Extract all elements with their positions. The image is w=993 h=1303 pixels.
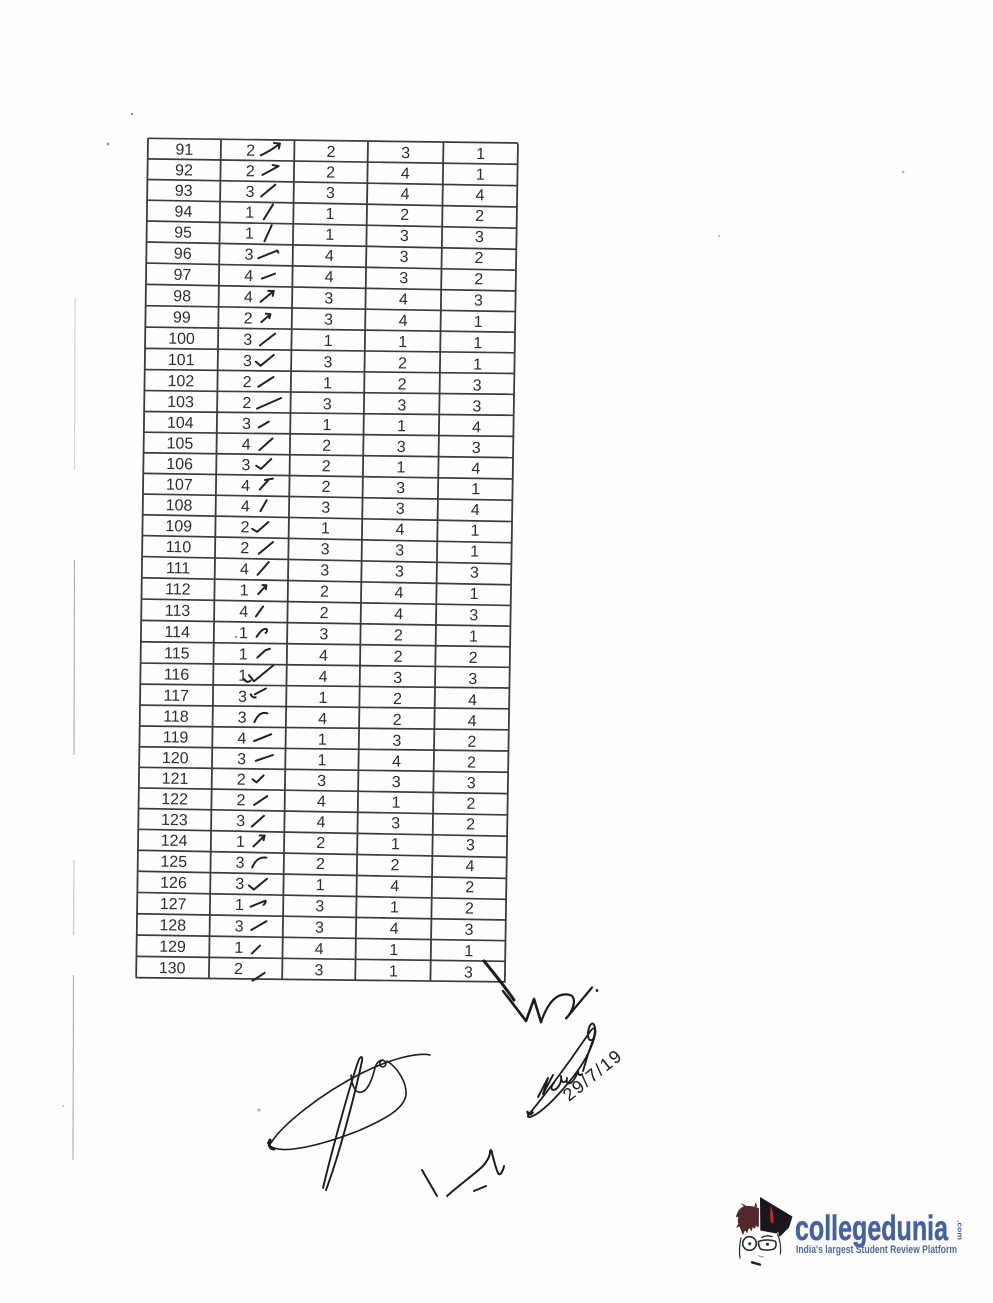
- svg-text:3: 3: [315, 898, 324, 915]
- svg-text:4: 4: [316, 814, 325, 831]
- svg-text:1: 1: [236, 834, 245, 851]
- svg-text:4: 4: [240, 561, 249, 578]
- svg-text:120: 120: [162, 750, 189, 767]
- svg-text:3: 3: [400, 228, 409, 245]
- svg-text:1: 1: [317, 752, 326, 769]
- svg-text:4: 4: [465, 858, 474, 875]
- svg-text:3: 3: [326, 185, 335, 202]
- svg-text:1: 1: [323, 375, 332, 392]
- svg-text:3: 3: [324, 290, 333, 307]
- svg-text:3: 3: [242, 416, 251, 433]
- svg-text:2: 2: [465, 879, 474, 896]
- svg-text:2: 2: [398, 376, 407, 393]
- svg-text:119: 119: [163, 729, 189, 746]
- svg-text:3: 3: [243, 353, 252, 370]
- svg-text:1: 1: [391, 836, 400, 853]
- svg-text:3: 3: [397, 397, 406, 414]
- svg-text:4: 4: [394, 585, 403, 602]
- svg-text:105: 105: [166, 435, 193, 452]
- svg-text:4: 4: [399, 291, 408, 308]
- svg-text:1: 1: [318, 690, 327, 707]
- svg-text:124: 124: [161, 833, 188, 850]
- svg-text:4: 4: [399, 313, 408, 330]
- svg-text:2: 2: [316, 835, 325, 852]
- svg-text:3: 3: [319, 626, 328, 643]
- svg-text:1: 1: [474, 314, 483, 331]
- svg-text:2: 2: [394, 649, 403, 666]
- svg-text:2: 2: [320, 584, 329, 601]
- svg-text:2: 2: [321, 479, 330, 496]
- svg-text:2: 2: [393, 691, 402, 708]
- svg-text:94: 94: [174, 204, 192, 221]
- svg-text:2: 2: [322, 458, 331, 475]
- svg-text:103: 103: [167, 394, 194, 411]
- svg-text:122: 122: [161, 791, 188, 808]
- svg-text:2: 2: [394, 627, 403, 644]
- svg-text:1: 1: [326, 206, 335, 223]
- svg-text:2: 2: [390, 857, 399, 874]
- svg-text:2: 2: [240, 519, 249, 536]
- svg-text:113: 113: [165, 603, 191, 620]
- svg-text:3: 3: [320, 562, 329, 579]
- svg-text:3: 3: [235, 876, 244, 893]
- svg-text:3: 3: [315, 920, 324, 937]
- svg-text:4: 4: [319, 669, 328, 686]
- svg-text:3: 3: [391, 815, 400, 832]
- svg-text:4: 4: [468, 692, 477, 709]
- svg-text:2: 2: [243, 374, 252, 391]
- svg-text:1: 1: [316, 877, 325, 894]
- svg-text:92: 92: [175, 162, 193, 179]
- svg-text:4: 4: [390, 921, 399, 938]
- svg-text:1: 1: [318, 732, 327, 749]
- svg-text:1: 1: [389, 963, 398, 980]
- svg-text:107: 107: [166, 477, 193, 494]
- svg-text:130: 130: [159, 960, 186, 977]
- svg-text:India's largest Student Review: India's largest Student Review Platform: [796, 1244, 957, 1256]
- svg-text:3: 3: [324, 312, 333, 329]
- svg-text:2: 2: [322, 438, 331, 455]
- svg-text:2: 2: [467, 734, 476, 751]
- svg-text:2: 2: [234, 961, 243, 978]
- svg-text:1: 1: [322, 417, 331, 434]
- svg-text:108: 108: [166, 497, 193, 514]
- svg-text:3: 3: [464, 964, 473, 981]
- svg-text:2: 2: [474, 271, 483, 288]
- svg-text:1: 1: [470, 544, 479, 561]
- svg-text:3: 3: [314, 962, 323, 979]
- svg-text:2: 2: [400, 207, 409, 224]
- svg-text:2: 2: [320, 605, 329, 622]
- svg-text:3: 3: [473, 378, 482, 395]
- svg-text:128: 128: [159, 917, 186, 934]
- svg-text:1: 1: [325, 227, 334, 244]
- svg-text:127: 127: [160, 896, 187, 913]
- svg-text:3: 3: [235, 855, 244, 872]
- svg-text:3: 3: [244, 247, 253, 264]
- svg-text:3: 3: [392, 774, 401, 791]
- svg-text:2: 2: [246, 143, 255, 160]
- svg-text:3: 3: [323, 396, 332, 413]
- svg-text:4: 4: [244, 268, 253, 285]
- svg-text:1: 1: [469, 629, 478, 646]
- svg-text:3: 3: [321, 541, 330, 558]
- svg-text:4: 4: [241, 498, 250, 515]
- svg-text:3: 3: [236, 813, 245, 830]
- svg-text:3: 3: [472, 398, 481, 415]
- svg-text:102: 102: [167, 373, 194, 390]
- svg-text:2: 2: [326, 144, 335, 161]
- svg-text:3: 3: [397, 439, 406, 456]
- svg-text:3: 3: [465, 922, 474, 939]
- svg-text:116: 116: [164, 666, 190, 683]
- svg-text:2: 2: [236, 792, 245, 809]
- svg-text:2: 2: [237, 772, 246, 789]
- svg-text:112: 112: [165, 581, 191, 598]
- svg-text:4: 4: [401, 166, 410, 183]
- svg-text:4: 4: [325, 248, 334, 265]
- svg-text:1: 1: [470, 523, 479, 540]
- svg-text:1: 1: [245, 205, 254, 222]
- svg-text:110: 110: [166, 539, 192, 556]
- svg-text:4: 4: [241, 478, 250, 495]
- svg-text:118: 118: [163, 708, 189, 725]
- svg-text:101: 101: [168, 352, 195, 369]
- svg-text:4: 4: [394, 606, 403, 623]
- svg-text:123: 123: [161, 812, 188, 829]
- svg-text:1: 1: [476, 167, 485, 184]
- svg-text:3: 3: [237, 751, 246, 768]
- svg-text:4: 4: [468, 713, 477, 730]
- svg-text:115: 115: [164, 645, 190, 662]
- svg-text:4: 4: [325, 269, 334, 286]
- svg-text:2: 2: [466, 796, 475, 813]
- svg-text:2: 2: [467, 755, 476, 772]
- svg-text:collegedunia: collegedunia: [795, 1209, 948, 1248]
- svg-text:1: 1: [234, 940, 243, 957]
- svg-text:4: 4: [390, 878, 399, 895]
- svg-text:2: 2: [326, 164, 335, 181]
- svg-text:4: 4: [315, 941, 324, 958]
- svg-text:1: 1: [464, 943, 473, 960]
- svg-text:2: 2: [244, 310, 253, 327]
- svg-text:1: 1: [389, 942, 398, 959]
- svg-text:2: 2: [469, 650, 478, 667]
- svg-text:2: 2: [242, 395, 251, 412]
- svg-text:111: 111: [166, 560, 191, 577]
- svg-text:3: 3: [466, 837, 475, 854]
- svg-text:106: 106: [166, 456, 193, 473]
- svg-text:100: 100: [168, 331, 195, 348]
- svg-text:2: 2: [393, 712, 402, 729]
- svg-text:3: 3: [401, 145, 410, 162]
- svg-text:3: 3: [399, 249, 408, 266]
- svg-text:3: 3: [396, 501, 405, 518]
- svg-text:1: 1: [397, 418, 406, 435]
- svg-text:114: 114: [164, 624, 190, 641]
- svg-text:3: 3: [395, 542, 404, 559]
- svg-text:3: 3: [469, 607, 478, 624]
- svg-text:93: 93: [175, 183, 193, 200]
- svg-text:1: 1: [476, 146, 485, 163]
- svg-text:3: 3: [238, 689, 247, 706]
- svg-text:3: 3: [472, 440, 481, 457]
- svg-text:3: 3: [323, 354, 332, 371]
- svg-text:3: 3: [235, 918, 244, 935]
- svg-text:4: 4: [475, 187, 484, 204]
- svg-text:3: 3: [241, 457, 250, 474]
- svg-text:3: 3: [396, 480, 405, 497]
- svg-text:95: 95: [174, 225, 192, 242]
- svg-text:2: 2: [465, 900, 474, 917]
- svg-text:99: 99: [173, 309, 191, 326]
- svg-text:2: 2: [475, 208, 484, 225]
- svg-text:1: 1: [321, 520, 330, 537]
- svg-text:3: 3: [243, 332, 252, 349]
- svg-text:1: 1: [235, 897, 244, 914]
- svg-text:2: 2: [246, 163, 255, 180]
- svg-text:.com: .com: [956, 1220, 965, 1240]
- svg-text:4: 4: [400, 186, 409, 203]
- svg-text:3: 3: [468, 671, 477, 688]
- svg-text:3: 3: [474, 293, 483, 310]
- svg-text:1: 1: [239, 625, 248, 642]
- svg-text:4: 4: [392, 753, 401, 770]
- svg-text:125: 125: [160, 854, 187, 871]
- svg-text:3: 3: [475, 229, 484, 246]
- svg-text:3: 3: [317, 773, 326, 790]
- svg-text:4: 4: [395, 522, 404, 539]
- svg-text:2: 2: [466, 816, 475, 833]
- svg-text:1: 1: [473, 356, 482, 373]
- svg-text:2: 2: [240, 540, 249, 557]
- svg-text:1: 1: [391, 795, 400, 812]
- svg-text:2: 2: [398, 355, 407, 372]
- svg-text:129: 129: [159, 939, 186, 956]
- svg-text:2: 2: [474, 250, 483, 267]
- svg-text:109: 109: [165, 518, 192, 535]
- svg-text:3: 3: [467, 775, 476, 792]
- svg-text:3: 3: [245, 184, 254, 201]
- svg-text:4: 4: [237, 730, 246, 747]
- svg-text:3: 3: [395, 564, 404, 581]
- svg-text:4: 4: [244, 289, 253, 306]
- svg-text:96: 96: [174, 246, 192, 263]
- svg-text:2: 2: [316, 856, 325, 873]
- svg-text:3: 3: [399, 270, 408, 287]
- svg-text:117: 117: [163, 688, 189, 705]
- svg-text:4: 4: [317, 793, 326, 810]
- svg-text:4: 4: [239, 604, 248, 621]
- svg-text:3: 3: [238, 710, 247, 727]
- svg-text:1: 1: [239, 646, 248, 663]
- svg-text:1: 1: [240, 582, 249, 599]
- svg-text:1: 1: [245, 226, 254, 243]
- svg-text:4: 4: [471, 461, 480, 478]
- svg-text:1: 1: [469, 586, 478, 603]
- svg-text:98: 98: [173, 288, 191, 305]
- svg-text:121: 121: [162, 771, 189, 788]
- svg-text:3: 3: [393, 670, 402, 687]
- svg-text:91: 91: [175, 142, 193, 159]
- svg-text:4: 4: [242, 437, 251, 454]
- svg-text:97: 97: [173, 267, 191, 284]
- svg-text:3: 3: [392, 733, 401, 750]
- svg-text:1: 1: [398, 334, 407, 351]
- svg-text:4: 4: [319, 648, 328, 665]
- svg-text:1: 1: [471, 481, 480, 498]
- svg-text:1: 1: [390, 899, 399, 916]
- svg-text:3: 3: [321, 500, 330, 517]
- svg-text:4: 4: [318, 711, 327, 728]
- svg-text:4: 4: [472, 419, 481, 436]
- svg-text:1: 1: [324, 333, 333, 350]
- svg-text:3: 3: [470, 565, 479, 582]
- svg-text:1: 1: [473, 335, 482, 352]
- svg-text:4: 4: [471, 502, 480, 519]
- svg-text:104: 104: [167, 415, 194, 432]
- svg-text:1: 1: [396, 459, 405, 476]
- svg-text:126: 126: [160, 875, 187, 892]
